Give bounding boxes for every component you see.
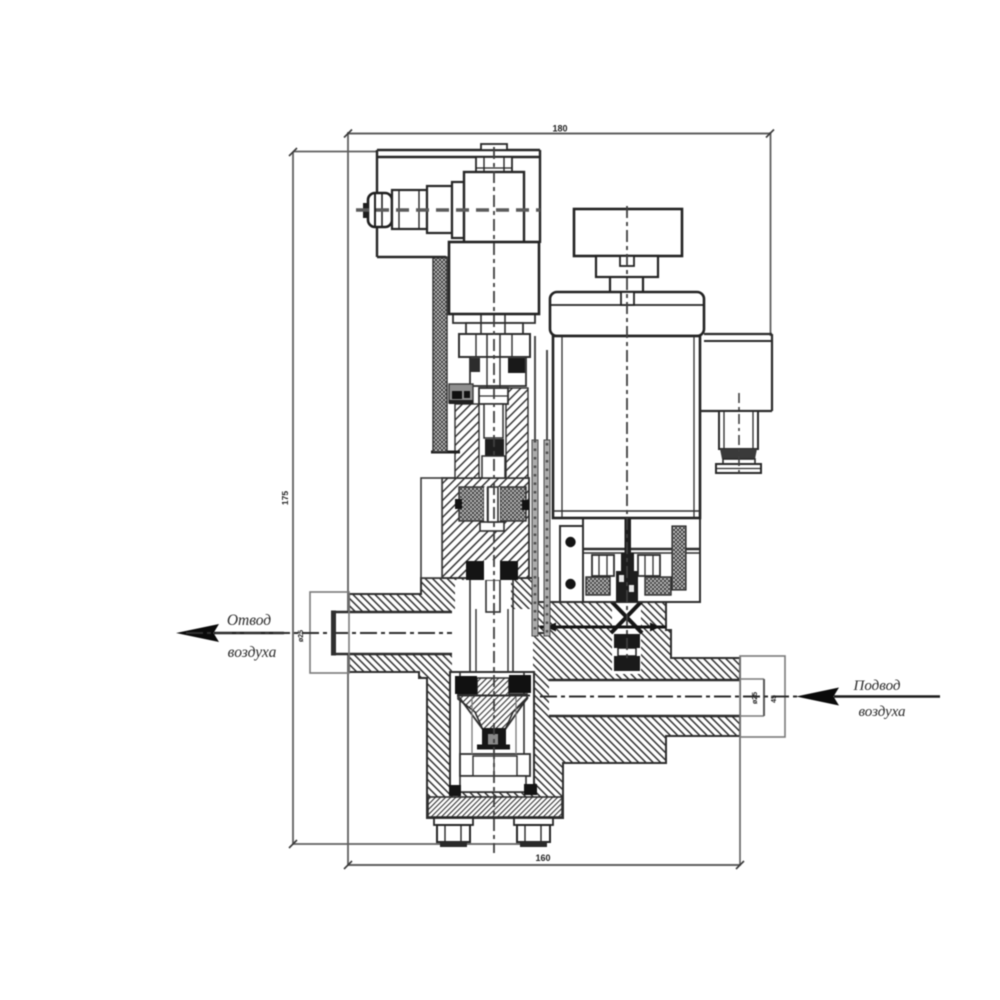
svg-text:воздуха: воздуха bbox=[228, 644, 277, 661]
svg-text:175: 175 bbox=[280, 491, 290, 505]
svg-text:160: 160 bbox=[535, 853, 550, 863]
svg-text:воздуха: воздуха bbox=[858, 704, 905, 720]
svg-text:Подвод: Подвод bbox=[853, 678, 901, 694]
svg-text:ø25: ø25 bbox=[752, 692, 759, 704]
svg-text:45: 45 bbox=[771, 695, 778, 703]
svg-text:180: 180 bbox=[552, 124, 567, 134]
svg-text:ø25: ø25 bbox=[298, 630, 305, 642]
svg-text:Отвод: Отвод bbox=[227, 612, 271, 629]
